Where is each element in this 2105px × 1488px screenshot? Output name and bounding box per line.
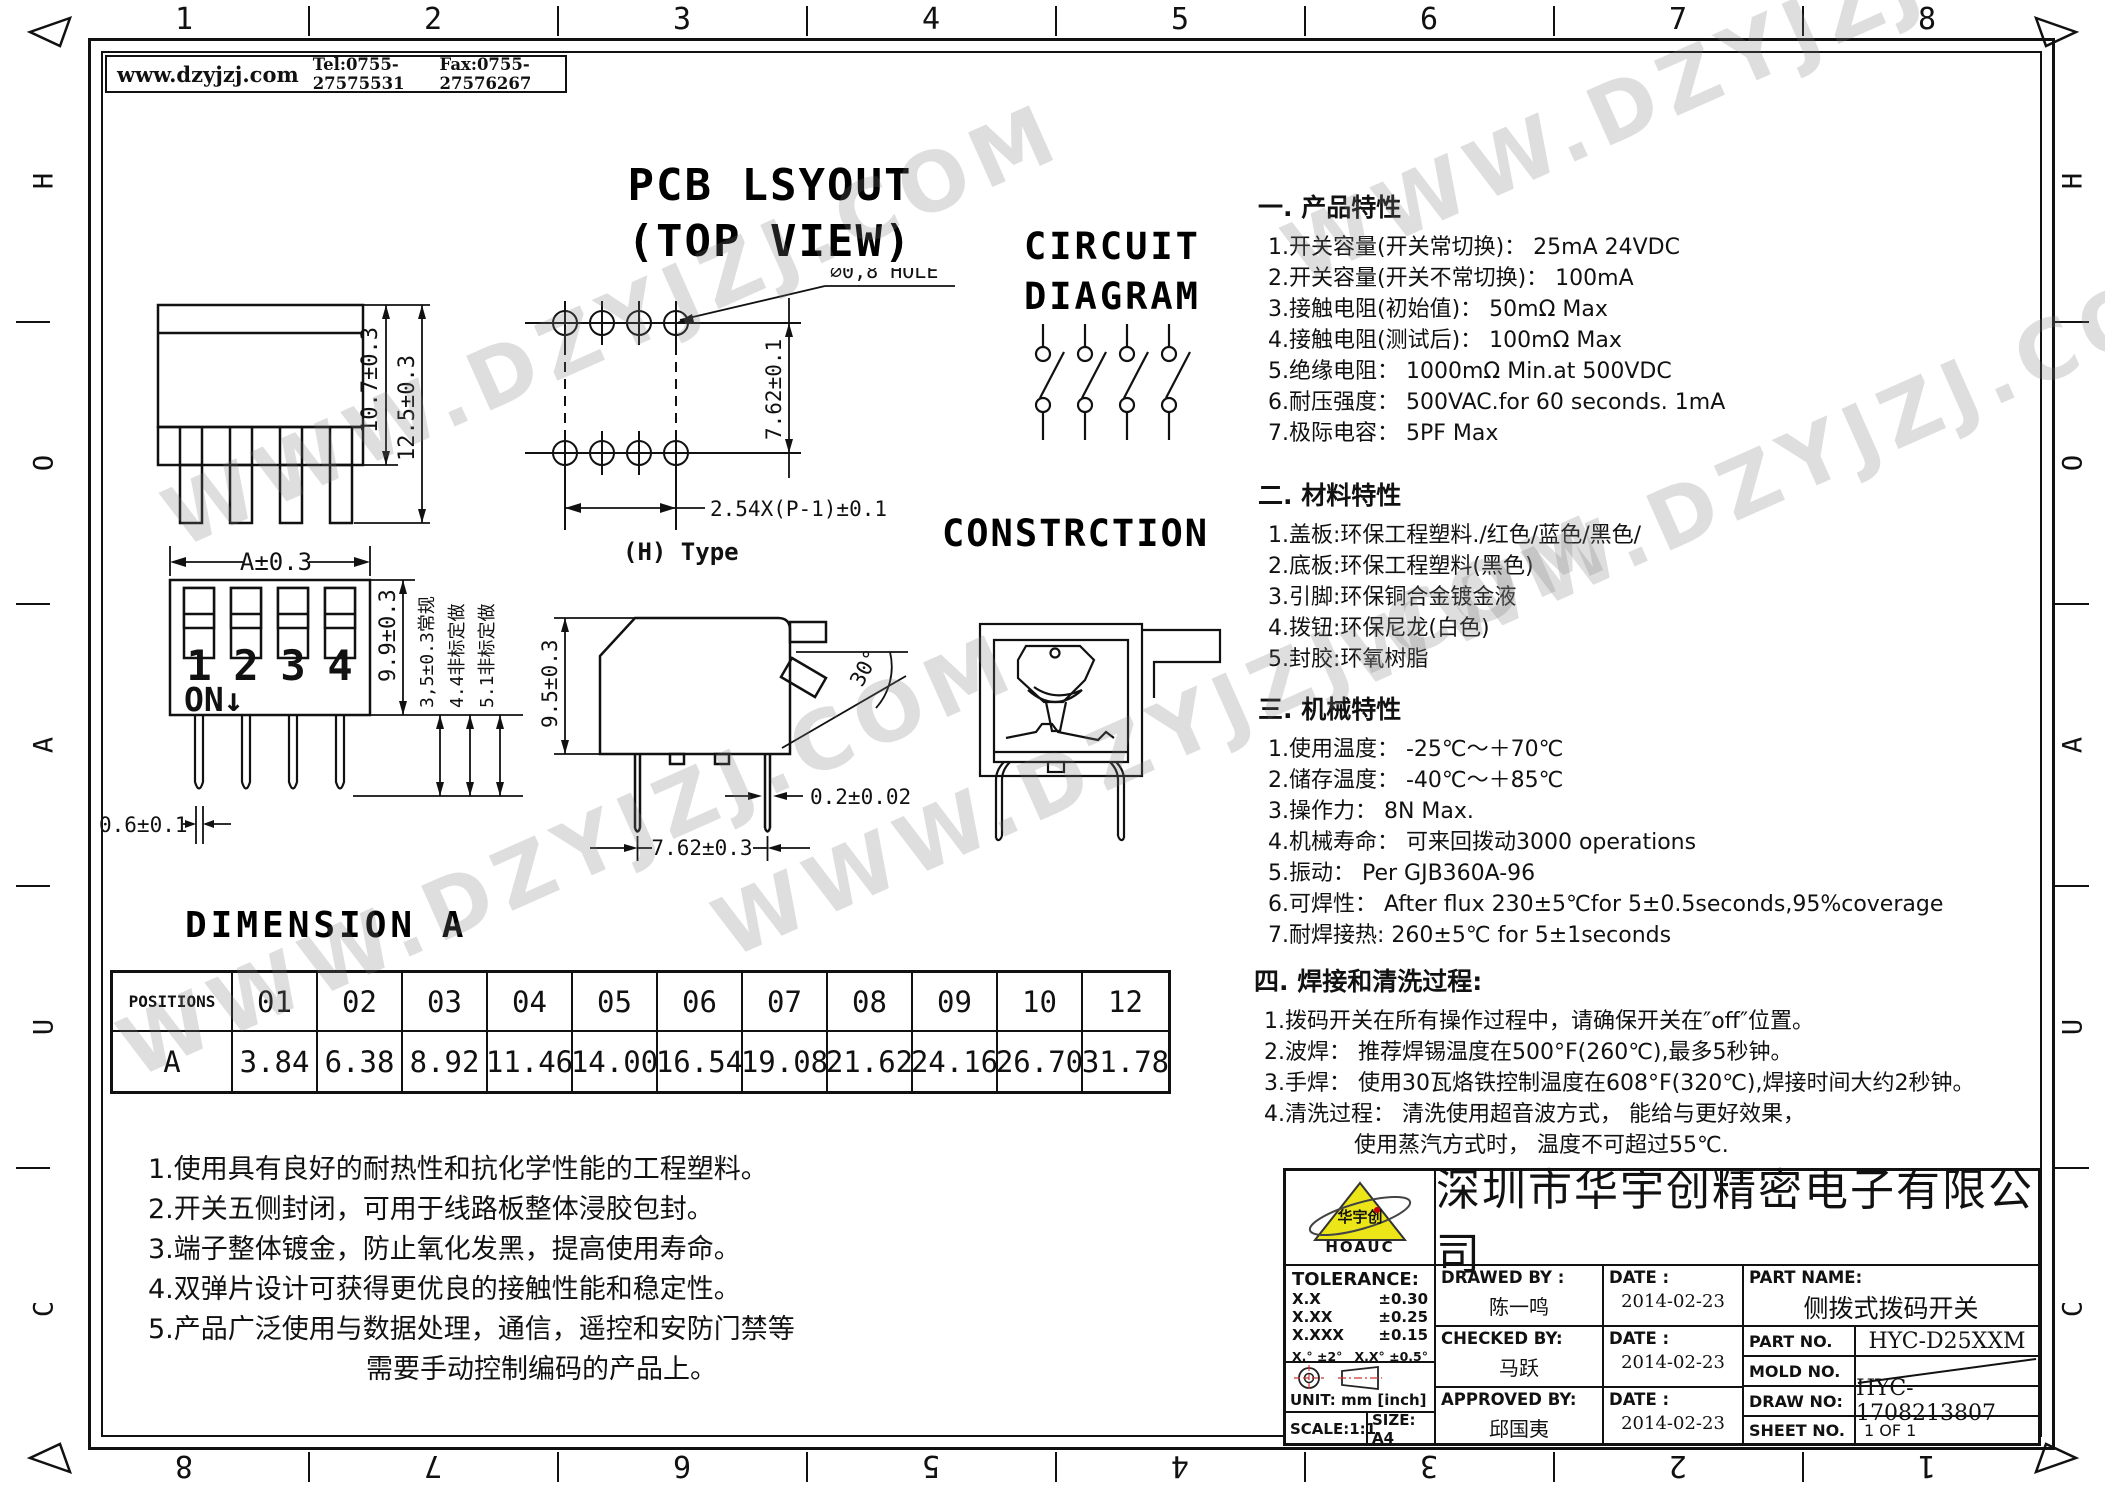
spec-item: 5.绝缘电阻： 1000mΩ Min.at 500VDC [1258,356,1725,387]
zone-letter-right: O [2058,455,2089,471]
dim-label: 9.5±0.3 [540,639,562,728]
dimension-a-table: POSITIONS 01 02 03 04 05 06 07 08 09 10 … [110,970,1171,1094]
pcb-layout-drawing: ∅0,8 HOLE 7.62±0.1 2.54X(P-1)±0.1 (H) Ty… [505,268,970,568]
switch-number: 3 [280,641,305,690]
spec-item: 6.耐压强度： 500VAC.for 60 seconds. 1mA [1258,387,1725,418]
part-name-cell: PART NAME: 侧拨式拨码开关 [1744,1266,2038,1327]
table-value: 6.38 [318,1032,403,1091]
dim-label: 2.54X(P-1)±0.1 [710,497,887,521]
circuit-title-line2: DIAGRAM [1024,272,1201,322]
date-column: DATE : 2014-02-23 DATE : 2014-02-23 DATE… [1604,1266,1744,1444]
h-type-drawing: 30° 9.5±0.3 0.2±0.02 7.62±0.3 [540,556,960,866]
pcb-title-line1: PCB LSYOUT [555,158,985,214]
zone-tick [16,603,50,605]
zone-tick [806,6,808,36]
corner-mark [26,14,72,50]
table-col-header: 02 [318,973,403,1032]
logo-brand-text: HOAUC [1325,1238,1394,1256]
note-line: 需要手动控制编码的产品上。 [148,1350,795,1390]
company-name: 深圳市华宇创精密电子有限公司 [1436,1171,2038,1264]
date-label: DATE : [1609,1329,1737,1348]
approved-by-label: APPROVED BY: [1441,1390,1597,1409]
drawed-date: 2014-02-23 [1609,1291,1737,1312]
tel-text: Tel:0755-27575531 [313,55,426,93]
note-line: 5.产品广泛使用与数据处理，通信，遥控和安防门禁等 [148,1310,795,1350]
pcb-pads [525,301,801,530]
zone-tick [16,1167,50,1169]
zone-number-top: 6 [1420,2,1438,37]
tol-key: X.X [1292,1290,1321,1308]
table-col-header: 05 [573,973,658,1032]
zone-tick [2055,885,2089,887]
construction-drawing [948,556,1253,861]
h-type-angle [782,652,908,748]
note-line: 4.双弹片设计可获得更优良的接触性能和稳定性。 [148,1270,795,1310]
spec-item: 4.机械寿命： 可来回拨动3000 operations [1258,827,1943,858]
projection-cell: UNIT: mm [inch] [1286,1363,1434,1413]
sheet-no-value: 1 OF 1 [1856,1417,2038,1444]
spec-item: 1.开关容量(开关常切换)： 25mA 24VDC [1258,232,1725,263]
dimension-a-title: DIMENSION A [185,905,467,946]
table-value: 24.16 [913,1032,998,1091]
zone-tick [308,1452,310,1482]
date-label: DATE : [1609,1268,1737,1287]
projection-cone-icon [1338,1365,1382,1391]
dim-label: 0.6±0.1 [99,813,188,837]
mold-no-label: MOLD NO. [1744,1357,1856,1385]
size-label: SIZE: A4 [1368,1413,1434,1444]
sheet-no-row: SHEET NO. 1 OF 1 [1744,1417,2038,1444]
draw-no-label: DRAW NO: [1744,1387,1856,1415]
spec-item: 1.使用温度： -25℃～＋70℃ [1258,734,1943,765]
construction-title: CONSTRCTION [942,512,1209,555]
zone-number-bottom: 4 [1171,1448,1189,1483]
zone-number-bottom: 2 [1669,1448,1687,1483]
zone-letter-right: H [2058,173,2089,189]
spec-title: 四. 焊接和清洗过程: [1254,962,1974,998]
zone-tick [1304,6,1306,36]
spec-item: 3.手焊： 使用30瓦烙铁控制温度在608°F(320℃),焊接时间大约2秒钟。 [1254,1068,1974,1099]
zone-tick [1055,1452,1057,1482]
table-value: 3.84 [233,1032,318,1091]
circuit-diagram-drawing [1015,322,1205,457]
spec-item: 5.振动： Per GJB360A-96 [1258,858,1943,889]
spec-item: 6.可焊性： After flux 230±5℃for 5±0.5seconds… [1258,889,1943,920]
zone-tick [557,6,559,36]
spec-section-mechanical: 三. 机械特性 1.使用温度： -25℃～＋70℃ 2.储存温度： -40℃～＋… [1258,690,1943,951]
logo-icon: 华宇创 [1301,1180,1419,1246]
h-type-dim-arrows [561,618,787,852]
tol-key: X.XXX [1292,1326,1344,1344]
table-value: 26.70 [998,1032,1083,1091]
note-line: 2.开关五侧封闭，可用于线路板整体浸胶包封。 [148,1190,795,1230]
zone-tick [1802,1452,1804,1482]
unit-label: UNIT: mm [inch] [1290,1391,1430,1409]
tol-val: ±0.15 [1378,1326,1428,1344]
table-value-row: A 3.84 6.38 8.92 11.46 14.00 16.54 19.08… [113,1032,1168,1091]
zone-tick [806,1452,808,1482]
zone-tick [16,321,50,323]
switch-number: 4 [327,641,352,690]
spec-title: 三. 机械特性 [1258,690,1943,726]
tol-val: ±0.25 [1378,1308,1428,1326]
part-name-label: PART NAME: [1749,1268,2033,1287]
note-line: 1.使用具有良好的耐热性和抗化学性能的工程塑料。 [148,1150,795,1190]
table-col-header: 04 [488,973,573,1032]
contact-header: www.dzyjzj.com Tel:0755-27575531 Fax:075… [105,55,567,93]
drawed-date-cell: DATE : 2014-02-23 [1604,1266,1742,1327]
spec-item: 3.操作力： 8N Max. [1258,796,1943,827]
dim-label: 7.62±0.1 [762,339,786,440]
circuit-title-line1: CIRCUIT [1024,222,1201,272]
pcb-leader [680,286,955,320]
table-col-header: 01 [233,973,318,1032]
zone-number-bottom: 8 [175,1448,193,1483]
approved-date-cell: DATE : 2014-02-23 [1604,1388,1742,1444]
zone-tick [1304,1452,1306,1482]
checked-by-name: 马跃 [1441,1352,1597,1381]
spec-item: 3.引脚:环保铜合金镀金液 [1258,582,1641,613]
table-value: 14.00 [573,1032,658,1091]
switch-symbols [1036,324,1190,440]
dim-label: 3,5±0.3常规 [417,596,438,708]
table-col-header: 03 [403,973,488,1032]
spec-item: 4.清洗过程： 清洗使用超音波方式， 能给与更好效果， [1254,1099,1974,1130]
table-value: 19.08 [743,1032,828,1091]
date-label: DATE : [1609,1390,1737,1409]
zone-number-top: 3 [673,2,691,37]
hole-label: ∅0,8 HOLE [830,268,938,283]
zone-letter-left: C [29,1301,60,1317]
spec-item: 1.盖板:环保工程塑料./红色/蓝色/黑色/ [1258,520,1641,551]
approved-by-name: 邱国夷 [1441,1413,1597,1442]
spec-section-product: 一. 产品特性 1.开关容量(开关常切换)： 25mA 24VDC 2.开关容量… [1258,188,1725,449]
zone-letter-left: U [29,1019,60,1035]
spec-item: 2.开关容量(开关不常切换)： 100mA [1258,263,1725,294]
dim-label: 12.5±0.3 [395,355,420,461]
zone-number-top: 5 [1171,2,1189,37]
zone-number-top: 8 [1918,2,1936,37]
zone-letter-right: A [2058,737,2089,753]
table-value: 21.62 [828,1032,913,1091]
zone-number-bottom: 1 [1918,1448,1936,1483]
spec-item: 2.波焊： 推荐焊锡温度在500°F(260℃),最多5秒钟。 [1254,1037,1974,1068]
checked-date-cell: DATE : 2014-02-23 [1604,1327,1742,1388]
h-type-dim-lines [554,618,810,861]
company-logo: 华宇创 HOAUC [1286,1171,1436,1264]
company-row: 华宇创 HOAUC 深圳市华宇创精密电子有限公司 [1286,1171,2038,1266]
switch-position-numbers: 1 2 3 4 ON↓ [184,641,353,719]
zone-tick [16,885,50,887]
dim-label: 10.7±0.3 [358,327,383,433]
scale-label: SCALE:1:1 [1286,1413,1368,1444]
zone-letter-right: U [2058,1019,2089,1035]
zone-number-top: 1 [175,2,193,37]
checked-by-cell: CHECKED BY: 马跃 [1436,1327,1602,1388]
construction-section [980,624,1220,840]
zone-number-bottom: 3 [1420,1448,1438,1483]
draw-no-value: HYC-1708213807 [1856,1387,2038,1415]
part-no-label: PART NO. [1744,1327,1856,1355]
spec-title: 一. 产品特性 [1258,188,1725,224]
title-block: 华宇创 HOAUC 深圳市华宇创精密电子有限公司 TOLERANCE: X.X±… [1283,1168,2041,1446]
spec-section-soldering: 四. 焊接和清洗过程: 1.拨码开关在所有操作过程中，请确保开关在″off″位置… [1254,962,1974,1161]
table-col-header: 06 [658,973,743,1032]
front-view-drawing: A±0.3 1 2 3 4 ON↓ [95,540,525,870]
zone-tick [1553,1452,1555,1482]
table-col-header: 12 [1083,973,1168,1032]
zone-tick [2055,321,2089,323]
checked-by-label: CHECKED BY: [1441,1329,1597,1348]
spec-section-material: 二. 材料特性 1.盖板:环保工程塑料./红色/蓝色/黑色/ 2.底板:环保工程… [1258,476,1641,675]
feature-notes: 1.使用具有良好的耐热性和抗化学性能的工程塑料。 2.开关五侧封闭，可用于线路板… [148,1150,795,1390]
spec-item: 2.储存温度： -40℃～＋85℃ [1258,765,1943,796]
table-col-header: 07 [743,973,828,1032]
pcb-dim-arrows [565,323,793,513]
spec-item: 5.封胶:环氧树脂 [1258,644,1641,675]
spec-item: 7.极际电容： 5PF Max [1258,418,1725,449]
zone-letter-left: O [29,455,60,471]
staff-column: DRAWED BY : 陈一鸣 CHECKED BY: 马跃 APPROVED … [1436,1266,1604,1444]
note-line: 3.端子整体镀金，防止氧化发黑，提高使用寿命。 [148,1230,795,1270]
drawed-by-cell: DRAWED BY : 陈一鸣 [1436,1266,1602,1327]
table-col-header: 10 [998,973,1083,1032]
checked-date: 2014-02-23 [1609,1352,1737,1373]
zone-number-bottom: 6 [673,1448,691,1483]
spec-item: 4.接触电阻(测试后)： 100mΩ Max [1258,325,1725,356]
zone-tick [2055,1167,2089,1169]
zone-tick [1055,6,1057,36]
table-value: 8.92 [403,1032,488,1091]
zone-number-top: 7 [1669,2,1687,37]
tolerance-label: TOLERANCE: [1292,1269,1428,1290]
corner-mark [26,1440,72,1476]
part-name-value: 侧拨式拨码开关 [1749,1289,2033,1325]
tolerance-column: TOLERANCE: X.X±0.30 X.XX±0.25 X.XXX±0.15… [1286,1266,1436,1444]
table-col-header: 08 [828,973,913,1032]
zone-number-bottom: 7 [424,1448,442,1483]
zone-tick [1802,6,1804,36]
circuit-diagram-title: CIRCUIT DIAGRAM [1024,222,1201,322]
part-info-column: PART NAME: 侧拨式拨码开关 PART NO. HYC-D25XXM M… [1744,1266,2038,1444]
approved-date: 2014-02-23 [1609,1413,1737,1434]
dim-label: 5.1非标定做 [477,603,498,708]
zone-letter-right: C [2058,1301,2089,1317]
table-corner-cell: POSITIONS [113,973,233,1032]
spec-item: 1.拨码开关在所有操作过程中，请确保开关在″off″位置。 [1254,1006,1974,1037]
zone-letter-left: A [29,737,60,753]
zone-number-bottom: 5 [922,1448,940,1483]
draw-no-row: DRAW NO: HYC-1708213807 [1744,1387,2038,1417]
h-type-body [600,618,826,832]
spec-item: 4.拨钮:环保尼龙(白色) [1258,613,1641,644]
projection-circle-icon [1294,1365,1324,1391]
approved-by-cell: APPROVED BY: 邱国夷 [1436,1388,1602,1444]
dim-label: 0.2±0.02 [810,785,911,809]
spec-item: 3.接触电阻(初始值)： 50mΩ Max [1258,294,1725,325]
fax-text: Fax:0755-27576267 [440,55,555,93]
spec-item: 7.耐焊接热: 260±5℃ for 5±1seconds [1258,920,1943,951]
spec-item: 2.底板:环保工程塑料(黑色) [1258,551,1641,582]
pcb-layout-title: PCB LSYOUT (TOP VIEW) [555,158,985,270]
dim-label: A±0.3 [240,548,312,576]
part-no-row: PART NO. HYC-D25XXM [1744,1327,2038,1357]
drawing-sheet: WWW.DZYJZJ.COM WWW.DZYJZJ.COM WWW.DZYJZJ… [0,0,2105,1488]
zone-number-top: 2 [424,2,442,37]
sheet-no-label: SHEET NO. [1744,1417,1856,1444]
table-value: 31.78 [1083,1032,1168,1091]
corner-mark [2034,14,2080,50]
spec-title: 二. 材料特性 [1258,476,1641,512]
tolerance-cell: TOLERANCE: X.X±0.30 X.XX±0.25 X.XXX±0.15… [1286,1266,1434,1363]
drawed-by-label: DRAWED BY : [1441,1268,1597,1287]
table-value: 16.54 [658,1032,743,1091]
table-value: 11.46 [488,1032,573,1091]
website-text: www.dzyjzj.com [117,62,299,87]
pcb-title-line2: (TOP VIEW) [555,214,985,270]
drawed-by-name: 陈一鸣 [1441,1291,1597,1320]
zone-tick [308,6,310,36]
zone-tick [557,1452,559,1482]
part-no-value: HYC-D25XXM [1856,1327,2038,1355]
dim-label: 9.9±0.3 [376,589,401,682]
zone-letter-left: H [29,173,60,189]
front-view-pins [195,715,344,789]
zone-tick [1553,6,1555,36]
tol-key: X.XX [1292,1308,1332,1326]
dim-label: 4.4非标定做 [447,603,468,708]
table-row-label: A [113,1032,233,1091]
zone-tick [2055,603,2089,605]
on-label: ON↓ [184,680,244,719]
table-col-header: 09 [913,973,998,1032]
side-view-body [158,305,363,523]
dim-label: 7.62±0.3 [651,836,752,860]
zone-number-top: 4 [922,2,940,37]
tol-val: ±0.30 [1378,1290,1428,1308]
table-header-row: POSITIONS 01 02 03 04 05 06 07 08 09 10 … [113,973,1168,1032]
